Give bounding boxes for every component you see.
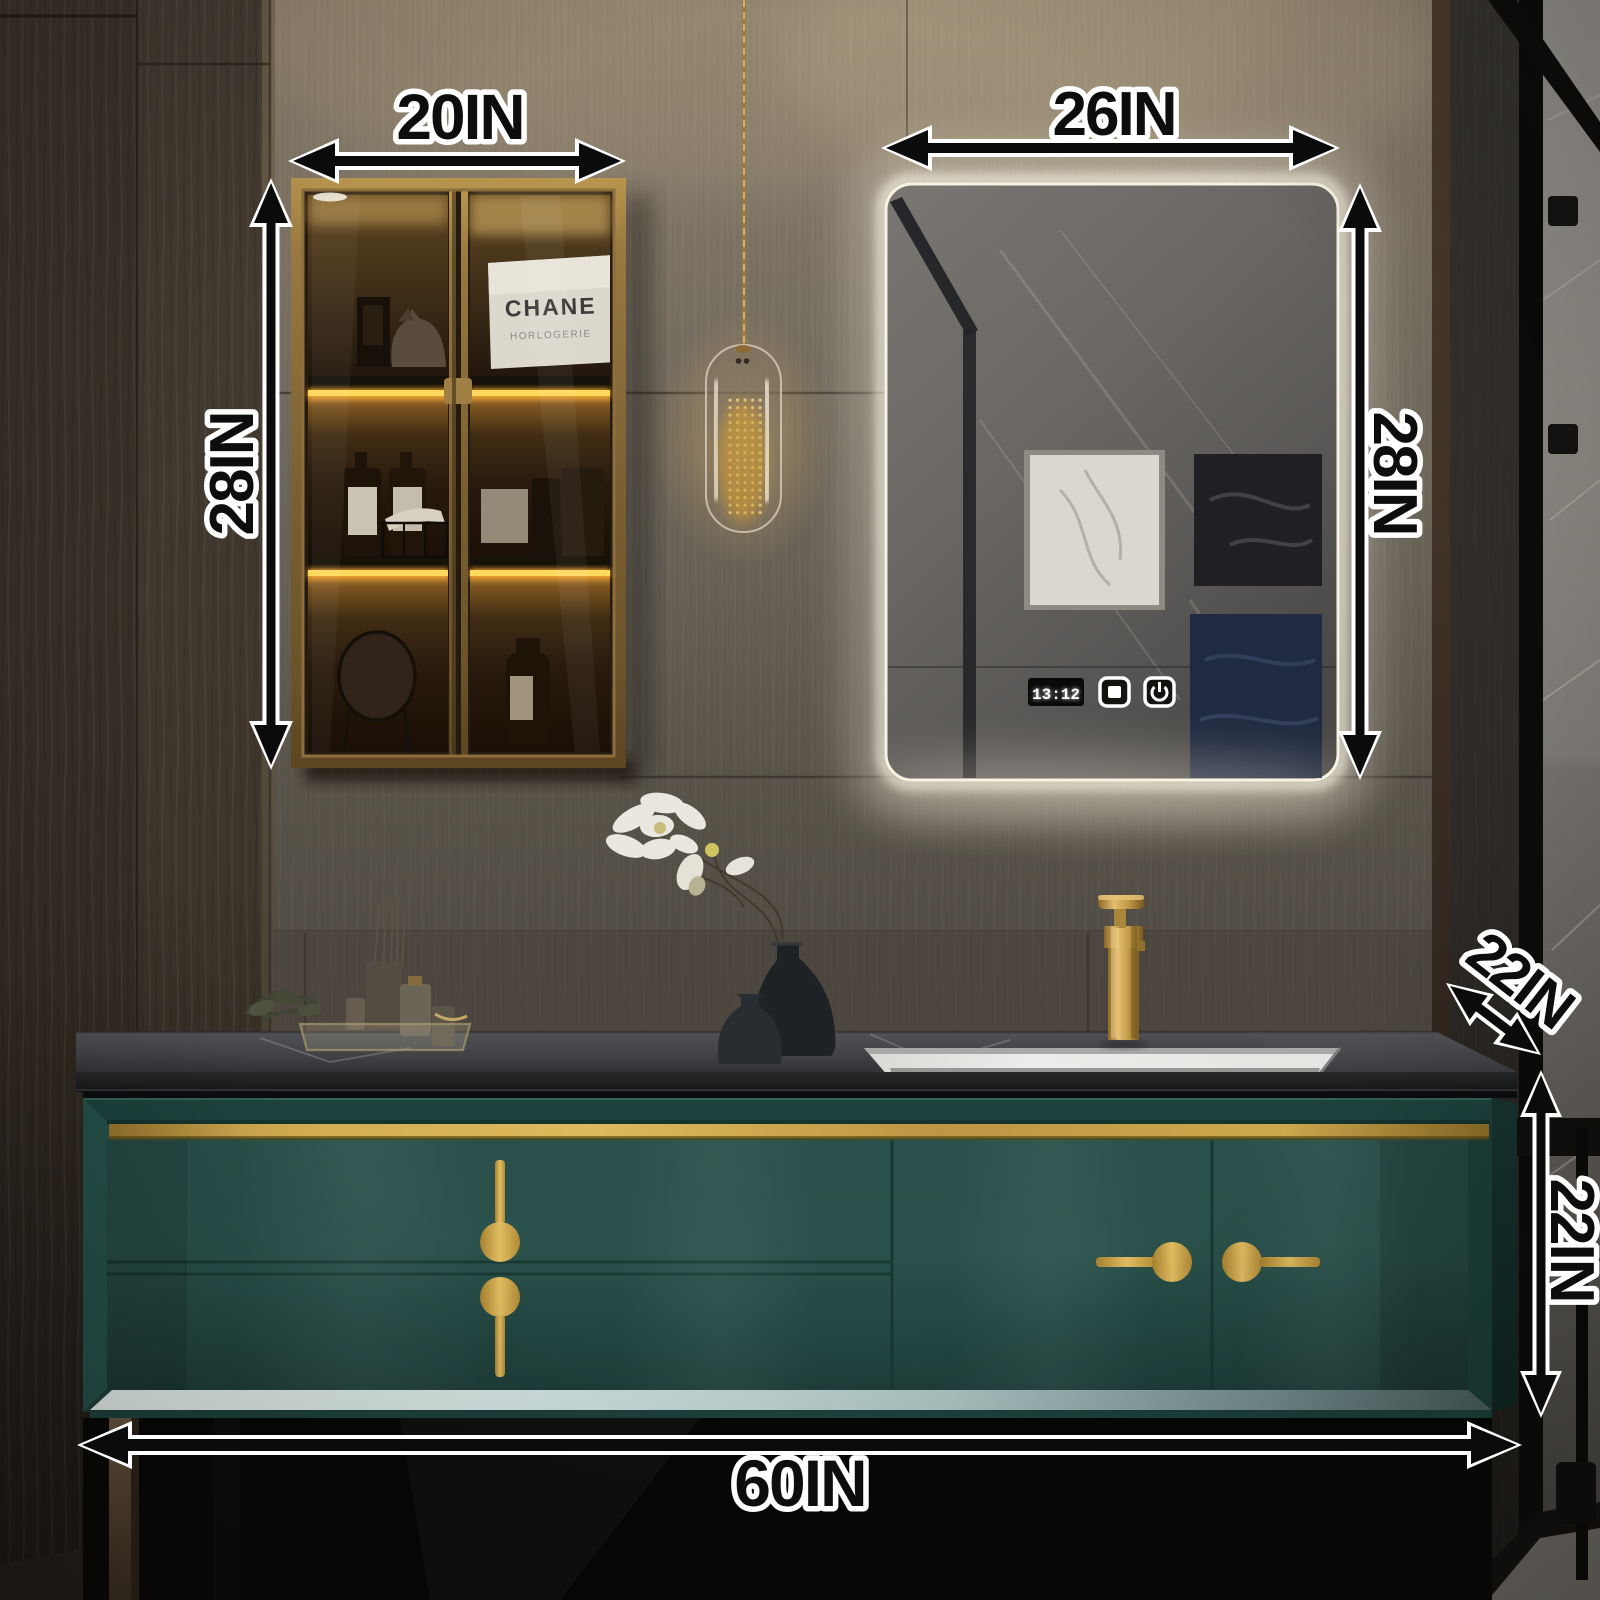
svg-text:28IN: 28IN [198,413,267,536]
svg-text:60IN: 60IN [734,1446,865,1520]
svg-text:20IN: 20IN [396,81,523,153]
svg-text:28IN: 28IN [1360,412,1429,535]
svg-text:26IN: 26IN [1053,80,1176,149]
svg-text:22IN: 22IN [1537,1179,1600,1302]
